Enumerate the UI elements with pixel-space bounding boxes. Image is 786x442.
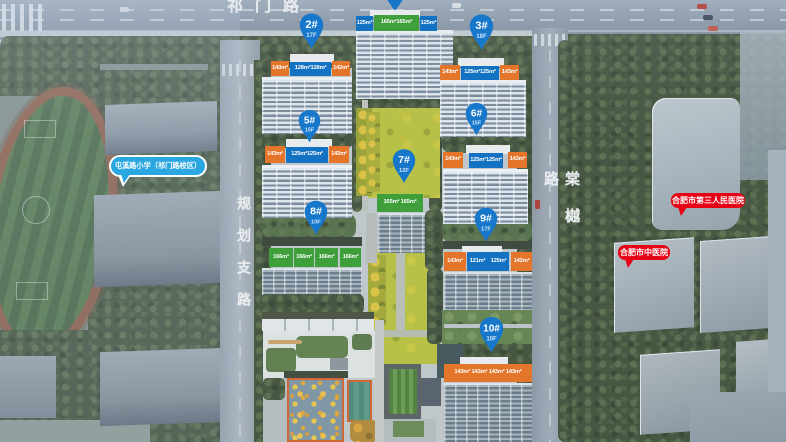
svg-text:7#: 7#	[398, 154, 410, 166]
svg-text:2#: 2#	[305, 19, 317, 31]
svg-text:5#: 5#	[304, 115, 316, 126]
svg-text:8#: 8#	[310, 206, 322, 218]
svg-text:10#: 10#	[483, 324, 500, 335]
svg-text:10F: 10F	[486, 337, 497, 343]
svg-text:9#: 9#	[480, 213, 492, 225]
svg-text:17F: 17F	[481, 226, 491, 232]
svg-text:18F: 18F	[476, 34, 487, 40]
svg-text:10F: 10F	[311, 219, 321, 225]
svg-text:15F: 15F	[472, 121, 482, 127]
svg-text:17F: 17F	[306, 33, 317, 39]
svg-text:12F: 12F	[399, 168, 409, 174]
svg-text:3#: 3#	[475, 20, 487, 32]
svg-text:6#: 6#	[471, 108, 483, 119]
svg-text:15F: 15F	[305, 128, 315, 134]
